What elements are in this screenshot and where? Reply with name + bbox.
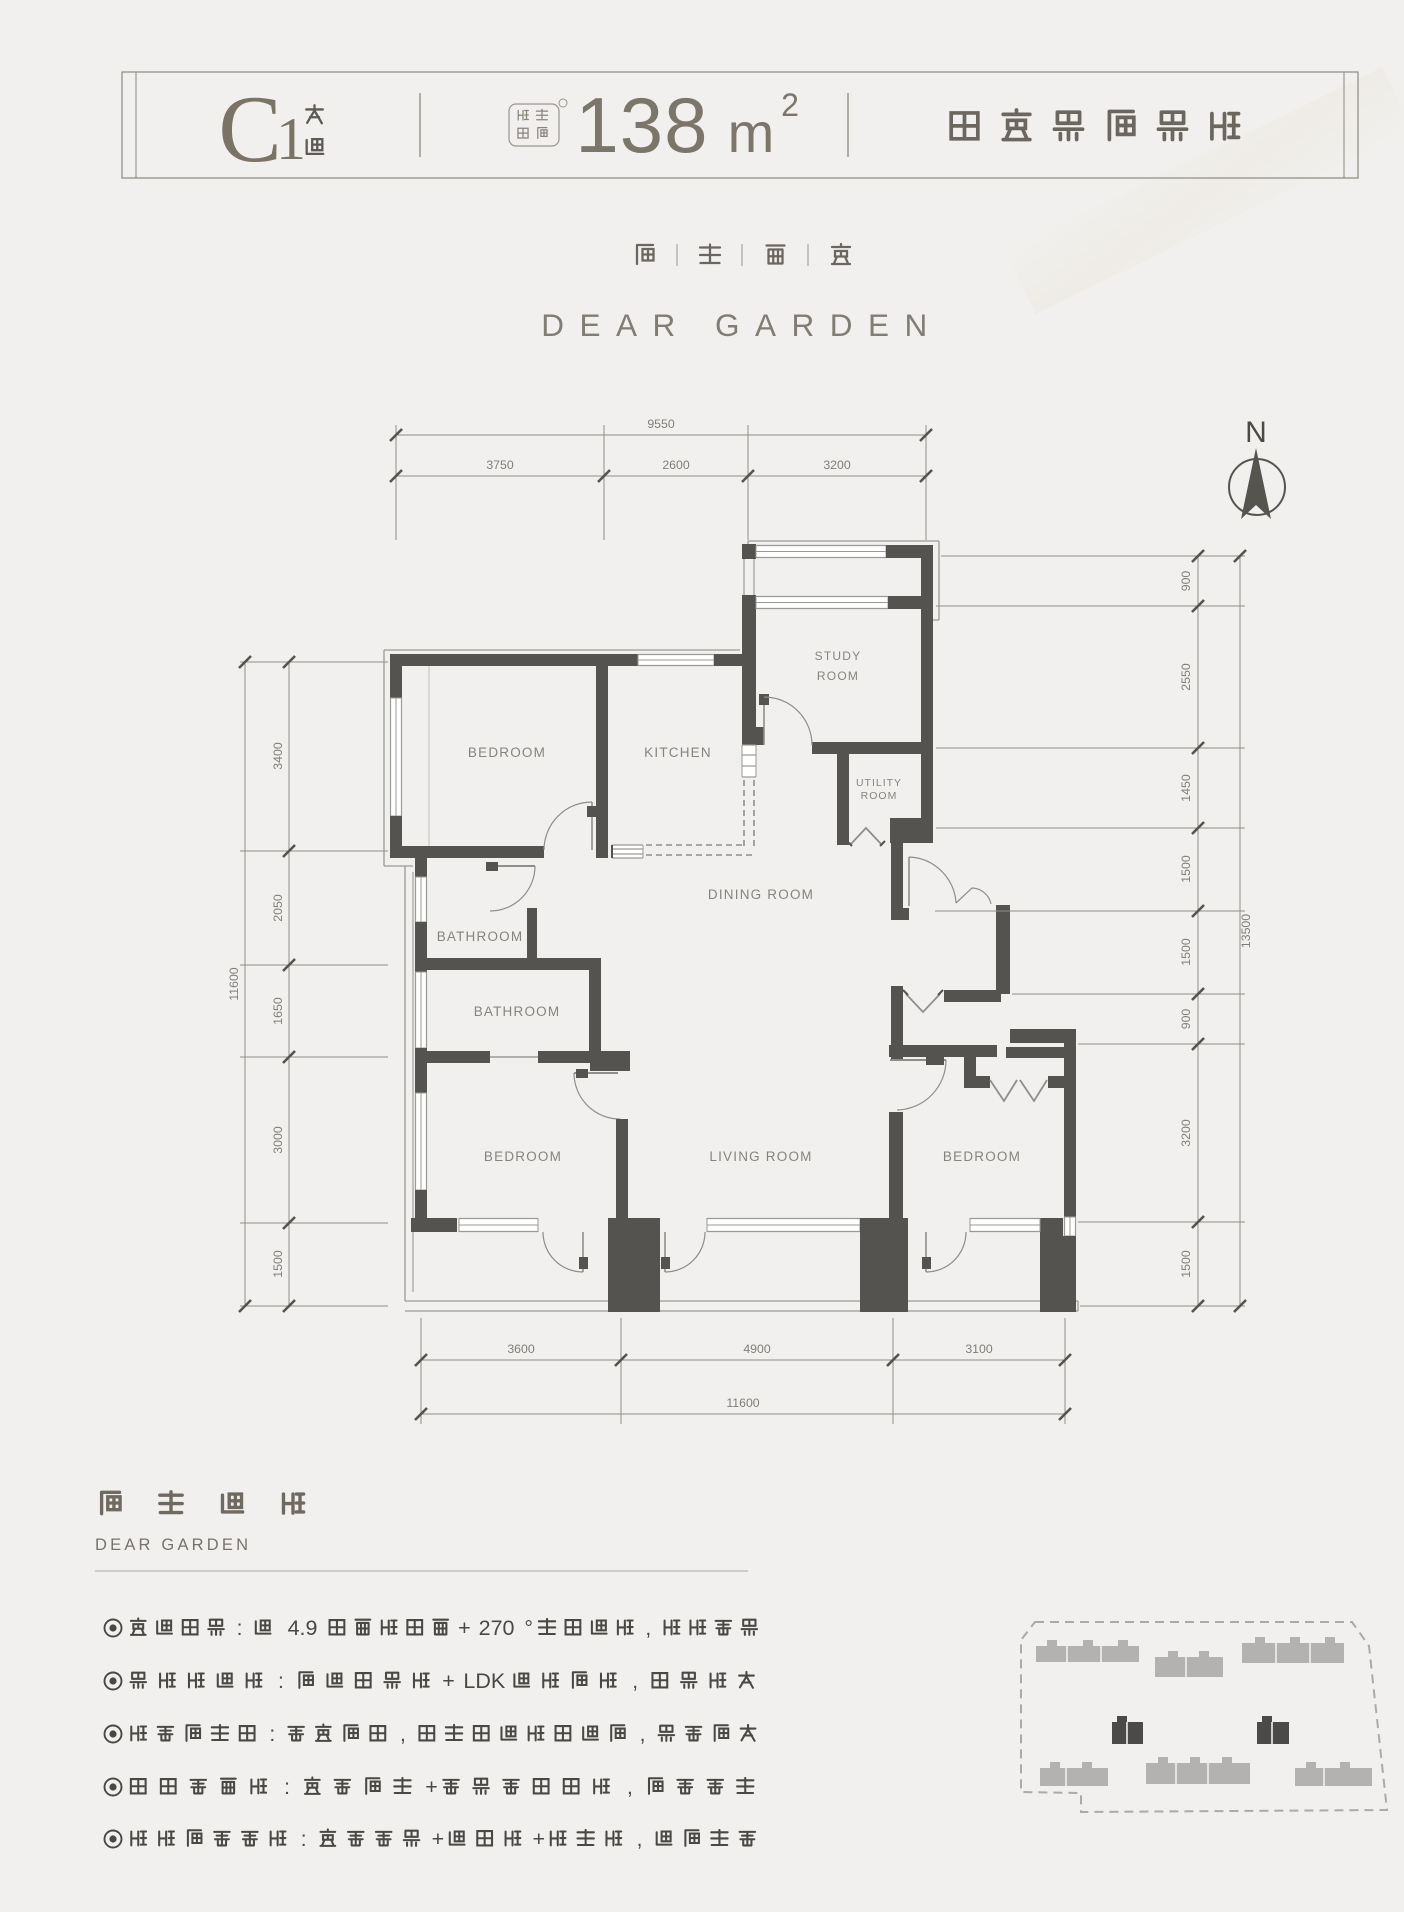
svg-text:LDK: LDK	[463, 1669, 505, 1693]
svg-text:+: +	[442, 1669, 455, 1693]
svg-text:,: ,	[632, 1670, 638, 1693]
svg-text::: :	[269, 1723, 275, 1746]
svg-text:2600: 2600	[662, 458, 690, 472]
svg-text::: :	[237, 1617, 243, 1640]
svg-text:DEAR GARDEN: DEAR GARDEN	[541, 307, 943, 343]
svg-text:1500: 1500	[1179, 1250, 1193, 1278]
svg-text:3750: 3750	[486, 458, 514, 472]
svg-text:,: ,	[400, 1723, 406, 1746]
svg-text:9550: 9550	[647, 417, 675, 431]
svg-text:1: 1	[276, 106, 306, 172]
svg-text:3200: 3200	[823, 458, 851, 472]
svg-text::: :	[278, 1670, 284, 1693]
svg-text:LIVING ROOM: LIVING ROOM	[709, 1149, 812, 1164]
svg-text:1500: 1500	[271, 1250, 285, 1278]
svg-text:N: N	[1245, 416, 1267, 449]
svg-text:BEDROOM: BEDROOM	[484, 1149, 562, 1164]
svg-text:+: +	[458, 1616, 471, 1640]
svg-text:900: 900	[1179, 1009, 1193, 1030]
svg-text:BEDROOM: BEDROOM	[468, 745, 546, 760]
svg-text:,: ,	[640, 1723, 646, 1746]
svg-text:1650: 1650	[271, 997, 285, 1025]
svg-text:KITCHEN: KITCHEN	[644, 745, 712, 760]
svg-text:138: 138	[575, 81, 708, 169]
svg-text:13500: 13500	[1239, 914, 1253, 948]
svg-text:3600: 3600	[507, 1342, 535, 1356]
svg-text:,: ,	[627, 1776, 633, 1799]
svg-text:11600: 11600	[227, 967, 241, 1000]
svg-text:3000: 3000	[271, 1126, 285, 1154]
svg-text:+: +	[533, 1827, 546, 1851]
svg-text:4.9: 4.9	[288, 1616, 318, 1640]
svg-text:270: 270	[479, 1616, 515, 1640]
svg-text::: :	[301, 1828, 307, 1851]
svg-text:4900: 4900	[743, 1342, 771, 1356]
svg-text:1500: 1500	[1179, 855, 1193, 883]
svg-text:3200: 3200	[1179, 1119, 1193, 1147]
svg-text:BEDROOM: BEDROOM	[943, 1149, 1021, 1164]
svg-text::: :	[284, 1776, 290, 1799]
svg-text:11600: 11600	[726, 1396, 759, 1410]
svg-text:ROOM: ROOM	[817, 669, 859, 683]
svg-text:,: ,	[637, 1828, 643, 1851]
svg-text:DEAR GARDEN: DEAR GARDEN	[95, 1536, 251, 1554]
svg-text:2: 2	[781, 87, 799, 123]
svg-text:,: ,	[645, 1617, 651, 1640]
svg-text:BATHROOM: BATHROOM	[474, 1004, 561, 1019]
svg-text:ROOM: ROOM	[861, 790, 898, 802]
svg-text:1500: 1500	[1179, 938, 1193, 966]
svg-text:STUDY: STUDY	[815, 649, 862, 663]
svg-text:°: °	[524, 1616, 533, 1640]
svg-text:3100: 3100	[965, 1342, 993, 1356]
svg-text:1450: 1450	[1179, 774, 1193, 802]
svg-text:UTILITY: UTILITY	[856, 777, 902, 789]
svg-text:3400: 3400	[271, 742, 285, 770]
svg-text:+: +	[432, 1827, 445, 1851]
svg-text:2550: 2550	[1179, 663, 1193, 691]
svg-text:C: C	[218, 76, 281, 182]
svg-text:BATHROOM: BATHROOM	[437, 929, 524, 944]
svg-text:900: 900	[1179, 571, 1193, 592]
svg-text:m: m	[728, 101, 775, 164]
svg-text:+: +	[425, 1775, 438, 1799]
svg-text:DINING ROOM: DINING ROOM	[708, 887, 814, 902]
svg-text:2050: 2050	[271, 894, 285, 922]
